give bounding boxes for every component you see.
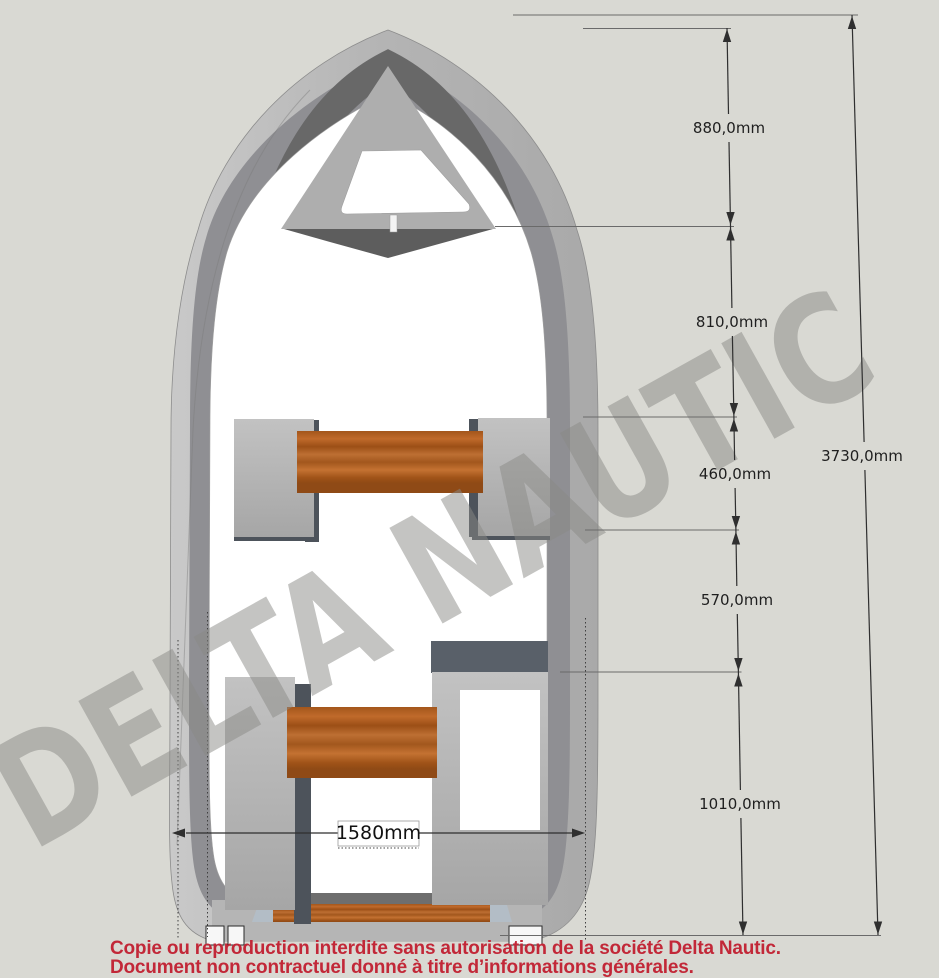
disclaimer: Copie ou reproduction interdite sans aut… [110,939,781,977]
dimension-label-overall-length: 3730,0mm [821,447,903,465]
disclaimer-line-2: Document non contractuel donné à titre d… [110,958,781,977]
bow-cleat [390,215,397,232]
drawing-canvas: DELTA NAUTIC [0,0,939,978]
dimension-label-570: 570,0mm [701,591,773,609]
rear-bench-front-face [287,769,437,778]
dimension-label-880: 880,0mm [693,119,765,137]
dimension-label-810: 810,0mm [696,313,768,331]
boat-dimension-drawing: DELTA NAUTIC [0,0,939,978]
console-hatch [460,690,540,830]
dimension-label-beam: 1580mm [336,822,421,844]
disclaimer-line-1: Copie ou reproduction interdite sans aut… [110,939,781,958]
dimension-label-460: 460,0mm [699,465,771,483]
dimension-label-1010: 1010,0mm [699,795,781,813]
